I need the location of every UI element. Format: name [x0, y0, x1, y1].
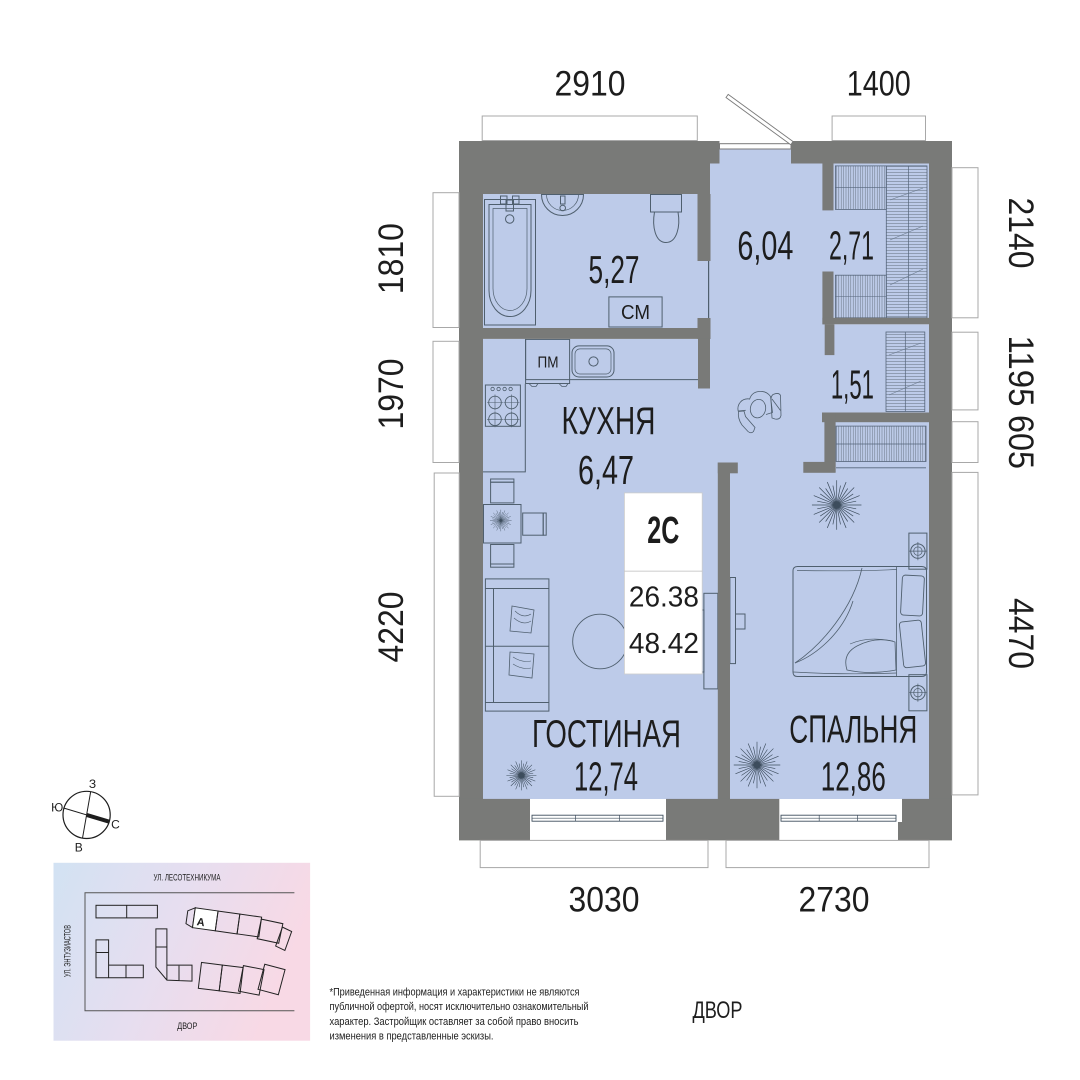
svg-text:1810: 1810	[372, 223, 411, 294]
svg-text:5,27: 5,27	[589, 249, 640, 292]
svg-text:характер. Застройщик оставляет: характер. Застройщик оставляет за собой …	[330, 1016, 579, 1028]
svg-text:ДВОР: ДВОР	[177, 1021, 197, 1032]
svg-text:1970: 1970	[372, 359, 411, 430]
svg-text:6,47: 6,47	[578, 447, 634, 493]
svg-text:4220: 4220	[372, 592, 411, 663]
svg-text:Ю: Ю	[51, 801, 63, 815]
svg-text:А: А	[196, 916, 206, 929]
svg-text:СПАЛЬНЯ: СПАЛЬНЯ	[789, 709, 917, 752]
svg-text:2,71: 2,71	[829, 223, 874, 269]
svg-text:2140: 2140	[1001, 198, 1040, 269]
svg-text:2С: 2С	[647, 510, 679, 552]
svg-text:1195: 1195	[1001, 336, 1040, 407]
svg-text:3030: 3030	[569, 881, 640, 920]
svg-text:1,51: 1,51	[831, 362, 874, 408]
svg-text:ДВОР: ДВОР	[693, 997, 743, 1024]
svg-text:48.42: 48.42	[629, 628, 699, 660]
svg-text:1400: 1400	[847, 65, 911, 104]
svg-text:2910: 2910	[555, 65, 626, 104]
svg-text:В: В	[75, 841, 83, 855]
svg-text:*Приведенная информация и хара: *Приведенная информация и характеристики…	[330, 987, 580, 999]
svg-text:С: С	[111, 818, 120, 832]
svg-text:ПМ: ПМ	[538, 355, 559, 372]
svg-text:6,04: 6,04	[737, 223, 793, 269]
svg-text:12,74: 12,74	[574, 754, 638, 800]
svg-text:12,86: 12,86	[821, 754, 886, 800]
svg-text:СМ: СМ	[621, 302, 650, 324]
svg-text:КУХНЯ: КУХНЯ	[562, 400, 656, 443]
svg-text:УЛ. ЭНТУЗИАСТОВ: УЛ. ЭНТУЗИАСТОВ	[63, 925, 74, 977]
svg-text:ГОСТИНАЯ: ГОСТИНАЯ	[532, 713, 681, 756]
svg-text:26.38: 26.38	[629, 582, 699, 614]
svg-text:УЛ. ЛЕСОТЕХНИКУМА: УЛ. ЛЕСОТЕХНИКУМА	[154, 873, 221, 884]
svg-text:2730: 2730	[799, 881, 870, 920]
svg-text:изменения в представленные эск: изменения в представленные эскизы.	[330, 1031, 494, 1043]
svg-text:З: З	[89, 777, 96, 791]
svg-text:публичной офертой, носят исклю: публичной офертой, носят исключительно о…	[330, 1001, 589, 1013]
svg-text:4470: 4470	[1001, 598, 1040, 669]
svg-text:605: 605	[1001, 415, 1040, 469]
